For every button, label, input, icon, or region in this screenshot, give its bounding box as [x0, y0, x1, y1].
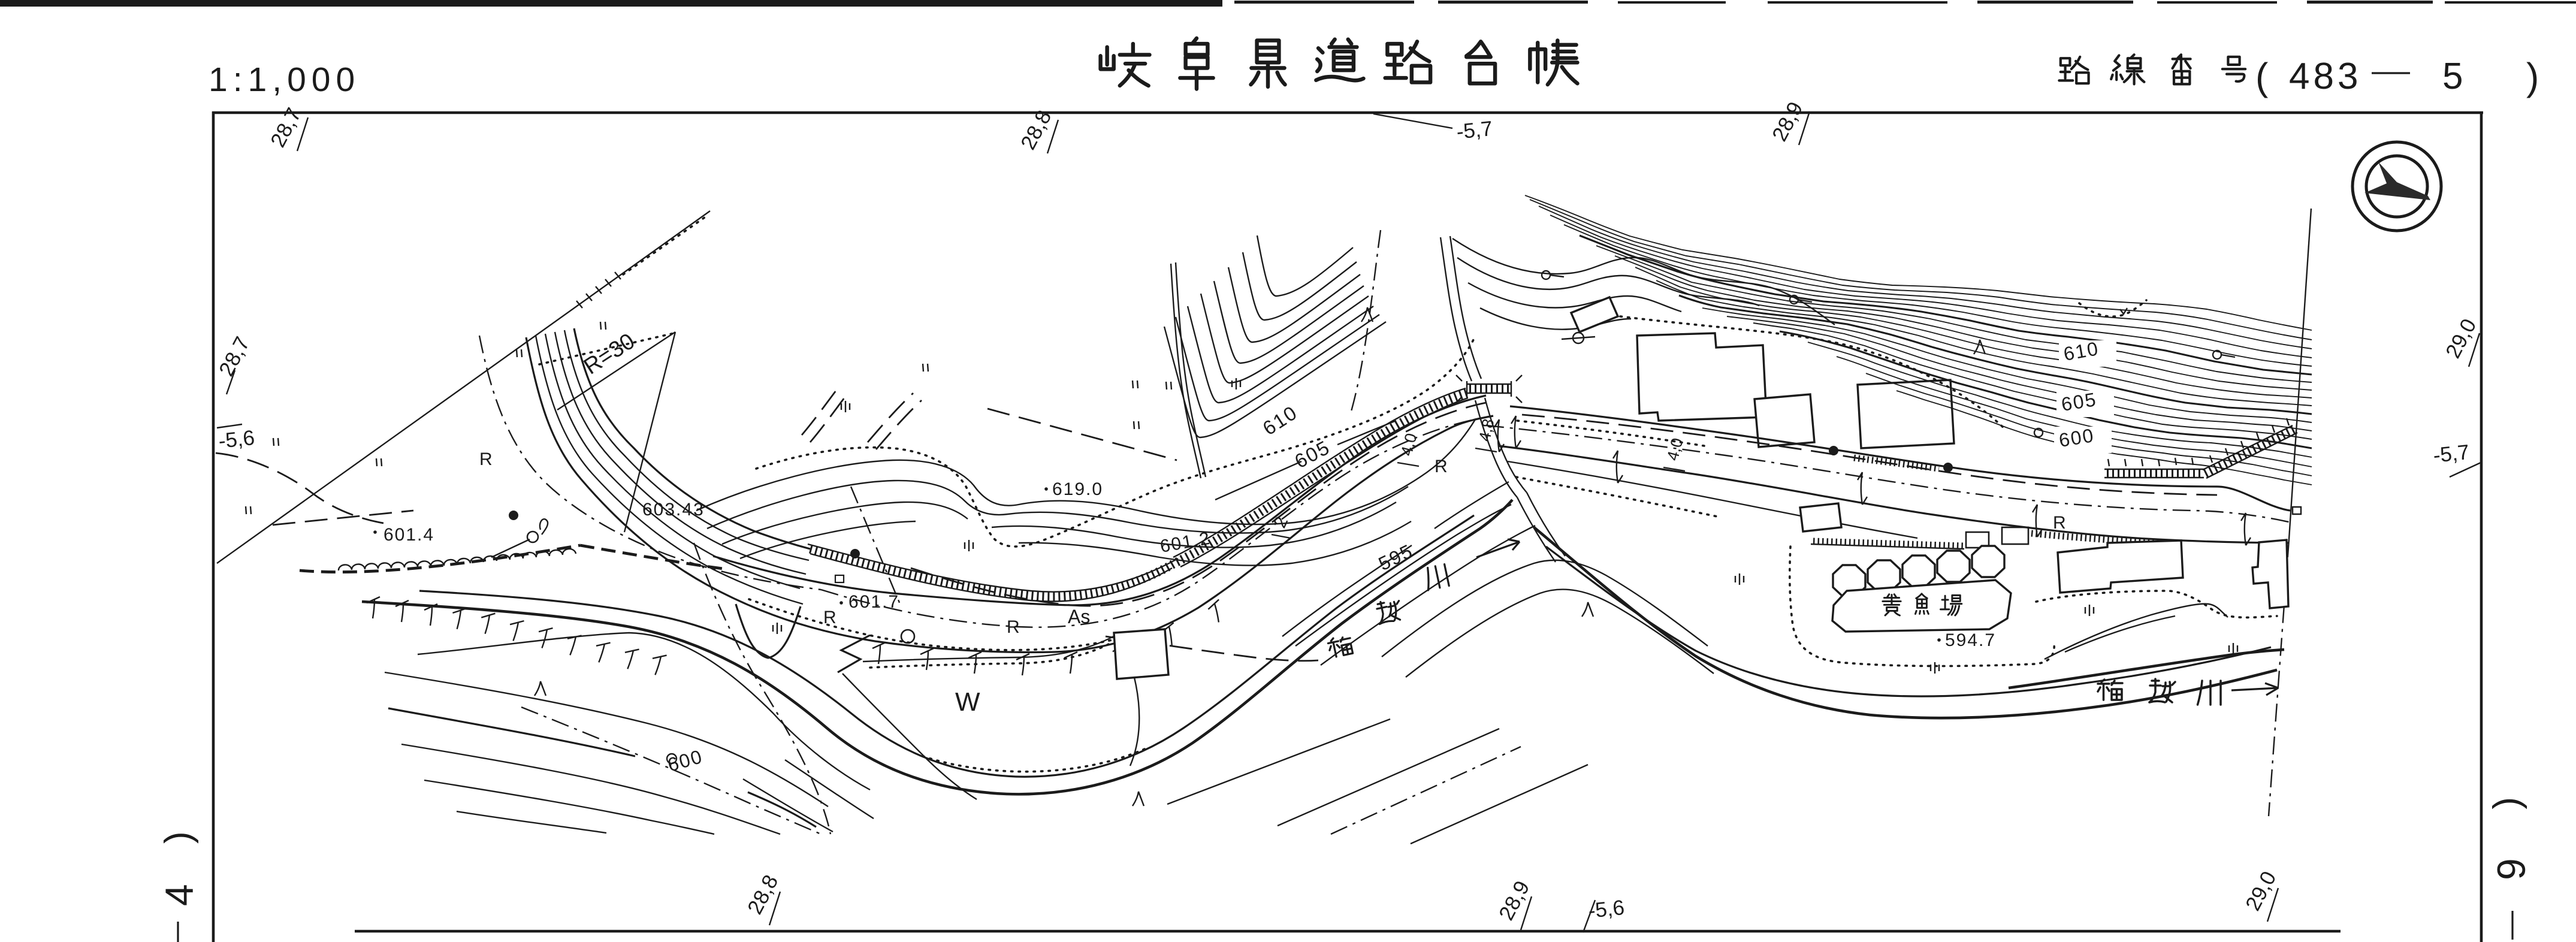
- svg-text:601.4: 601.4: [383, 525, 434, 545]
- svg-text:R: R: [1007, 617, 1020, 637]
- svg-text:4: 4: [157, 884, 201, 906]
- svg-text:6: 6: [2489, 858, 2533, 880]
- svg-text:(: (: [2492, 797, 2533, 810]
- svg-text:603.43: 603.43: [642, 500, 705, 520]
- svg-text:5: 5: [2442, 56, 2463, 97]
- svg-text:-5,7: -5,7: [2432, 440, 2471, 467]
- svg-text:-5,7: -5,7: [1455, 117, 1494, 144]
- svg-text:1:1,000: 1:1,000: [209, 61, 360, 99]
- svg-text:-5,6: -5,6: [218, 426, 256, 453]
- svg-text:483: 483: [2289, 56, 2361, 97]
- svg-text:As: As: [1068, 606, 1090, 627]
- svg-text:601.7: 601.7: [848, 592, 899, 612]
- svg-text:-5,6: -5,6: [1587, 896, 1626, 923]
- svg-text:R: R: [2053, 513, 2066, 533]
- svg-text:619.0: 619.0: [1052, 479, 1103, 499]
- svg-text:(: (: [2255, 55, 2268, 98]
- svg-text:R: R: [479, 449, 493, 469]
- svg-text:): ): [2526, 55, 2539, 98]
- svg-text:R: R: [823, 608, 836, 627]
- svg-text:W: W: [955, 687, 980, 717]
- svg-text:): ): [158, 831, 199, 844]
- svg-text:594.7: 594.7: [1945, 630, 1996, 650]
- svg-text:R: R: [1435, 457, 1448, 476]
